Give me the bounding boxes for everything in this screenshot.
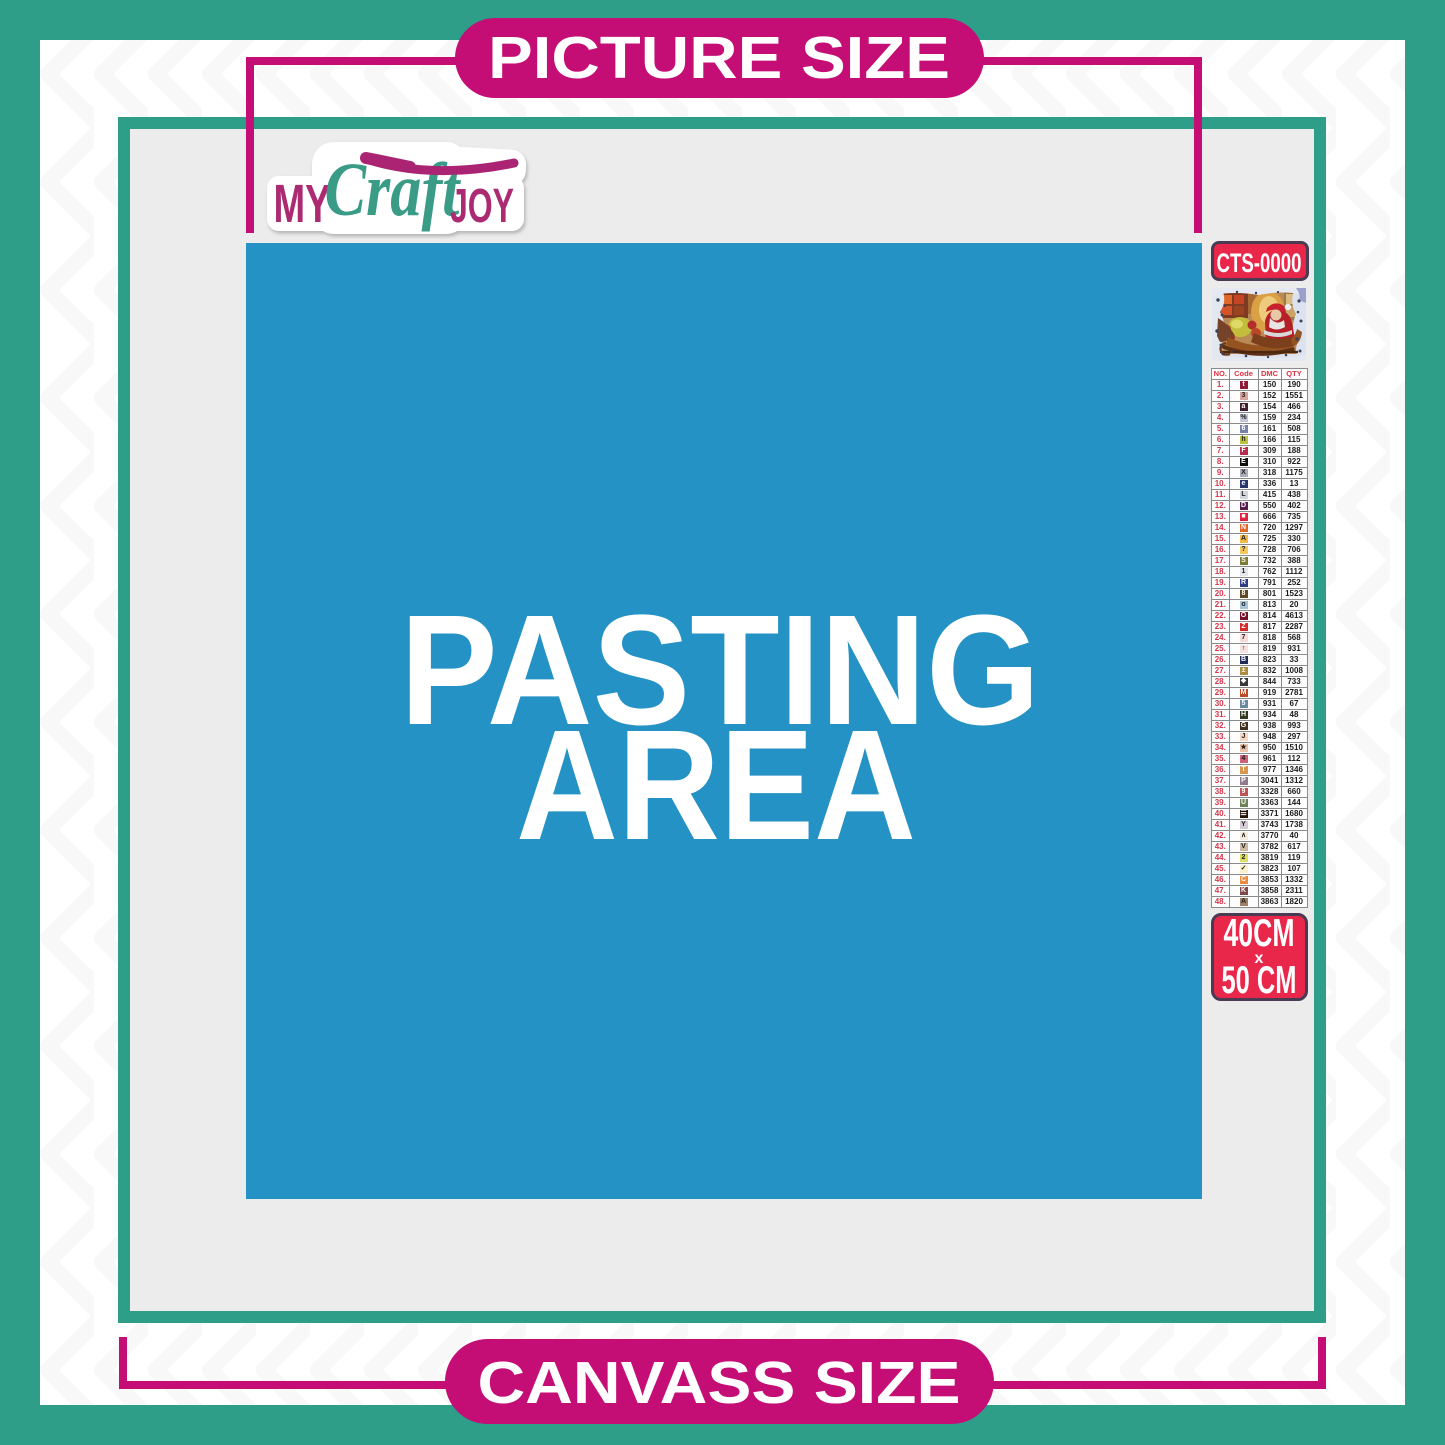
svg-text:PICTURE SIZE: PICTURE SIZE: [488, 25, 950, 91]
svg-text:JOY: JOY: [450, 180, 514, 233]
svg-text:CANVASS SIZE: CANVASS SIZE: [478, 1350, 961, 1416]
svg-text:50 CM: 50 CM: [1222, 959, 1297, 1001]
svg-text:40CM: 40CM: [1224, 913, 1295, 955]
svg-text:AREA: AREA: [516, 698, 916, 873]
svg-text:MY: MY: [274, 174, 331, 234]
svg-text:CTS-0000: CTS-0000: [1217, 248, 1302, 278]
